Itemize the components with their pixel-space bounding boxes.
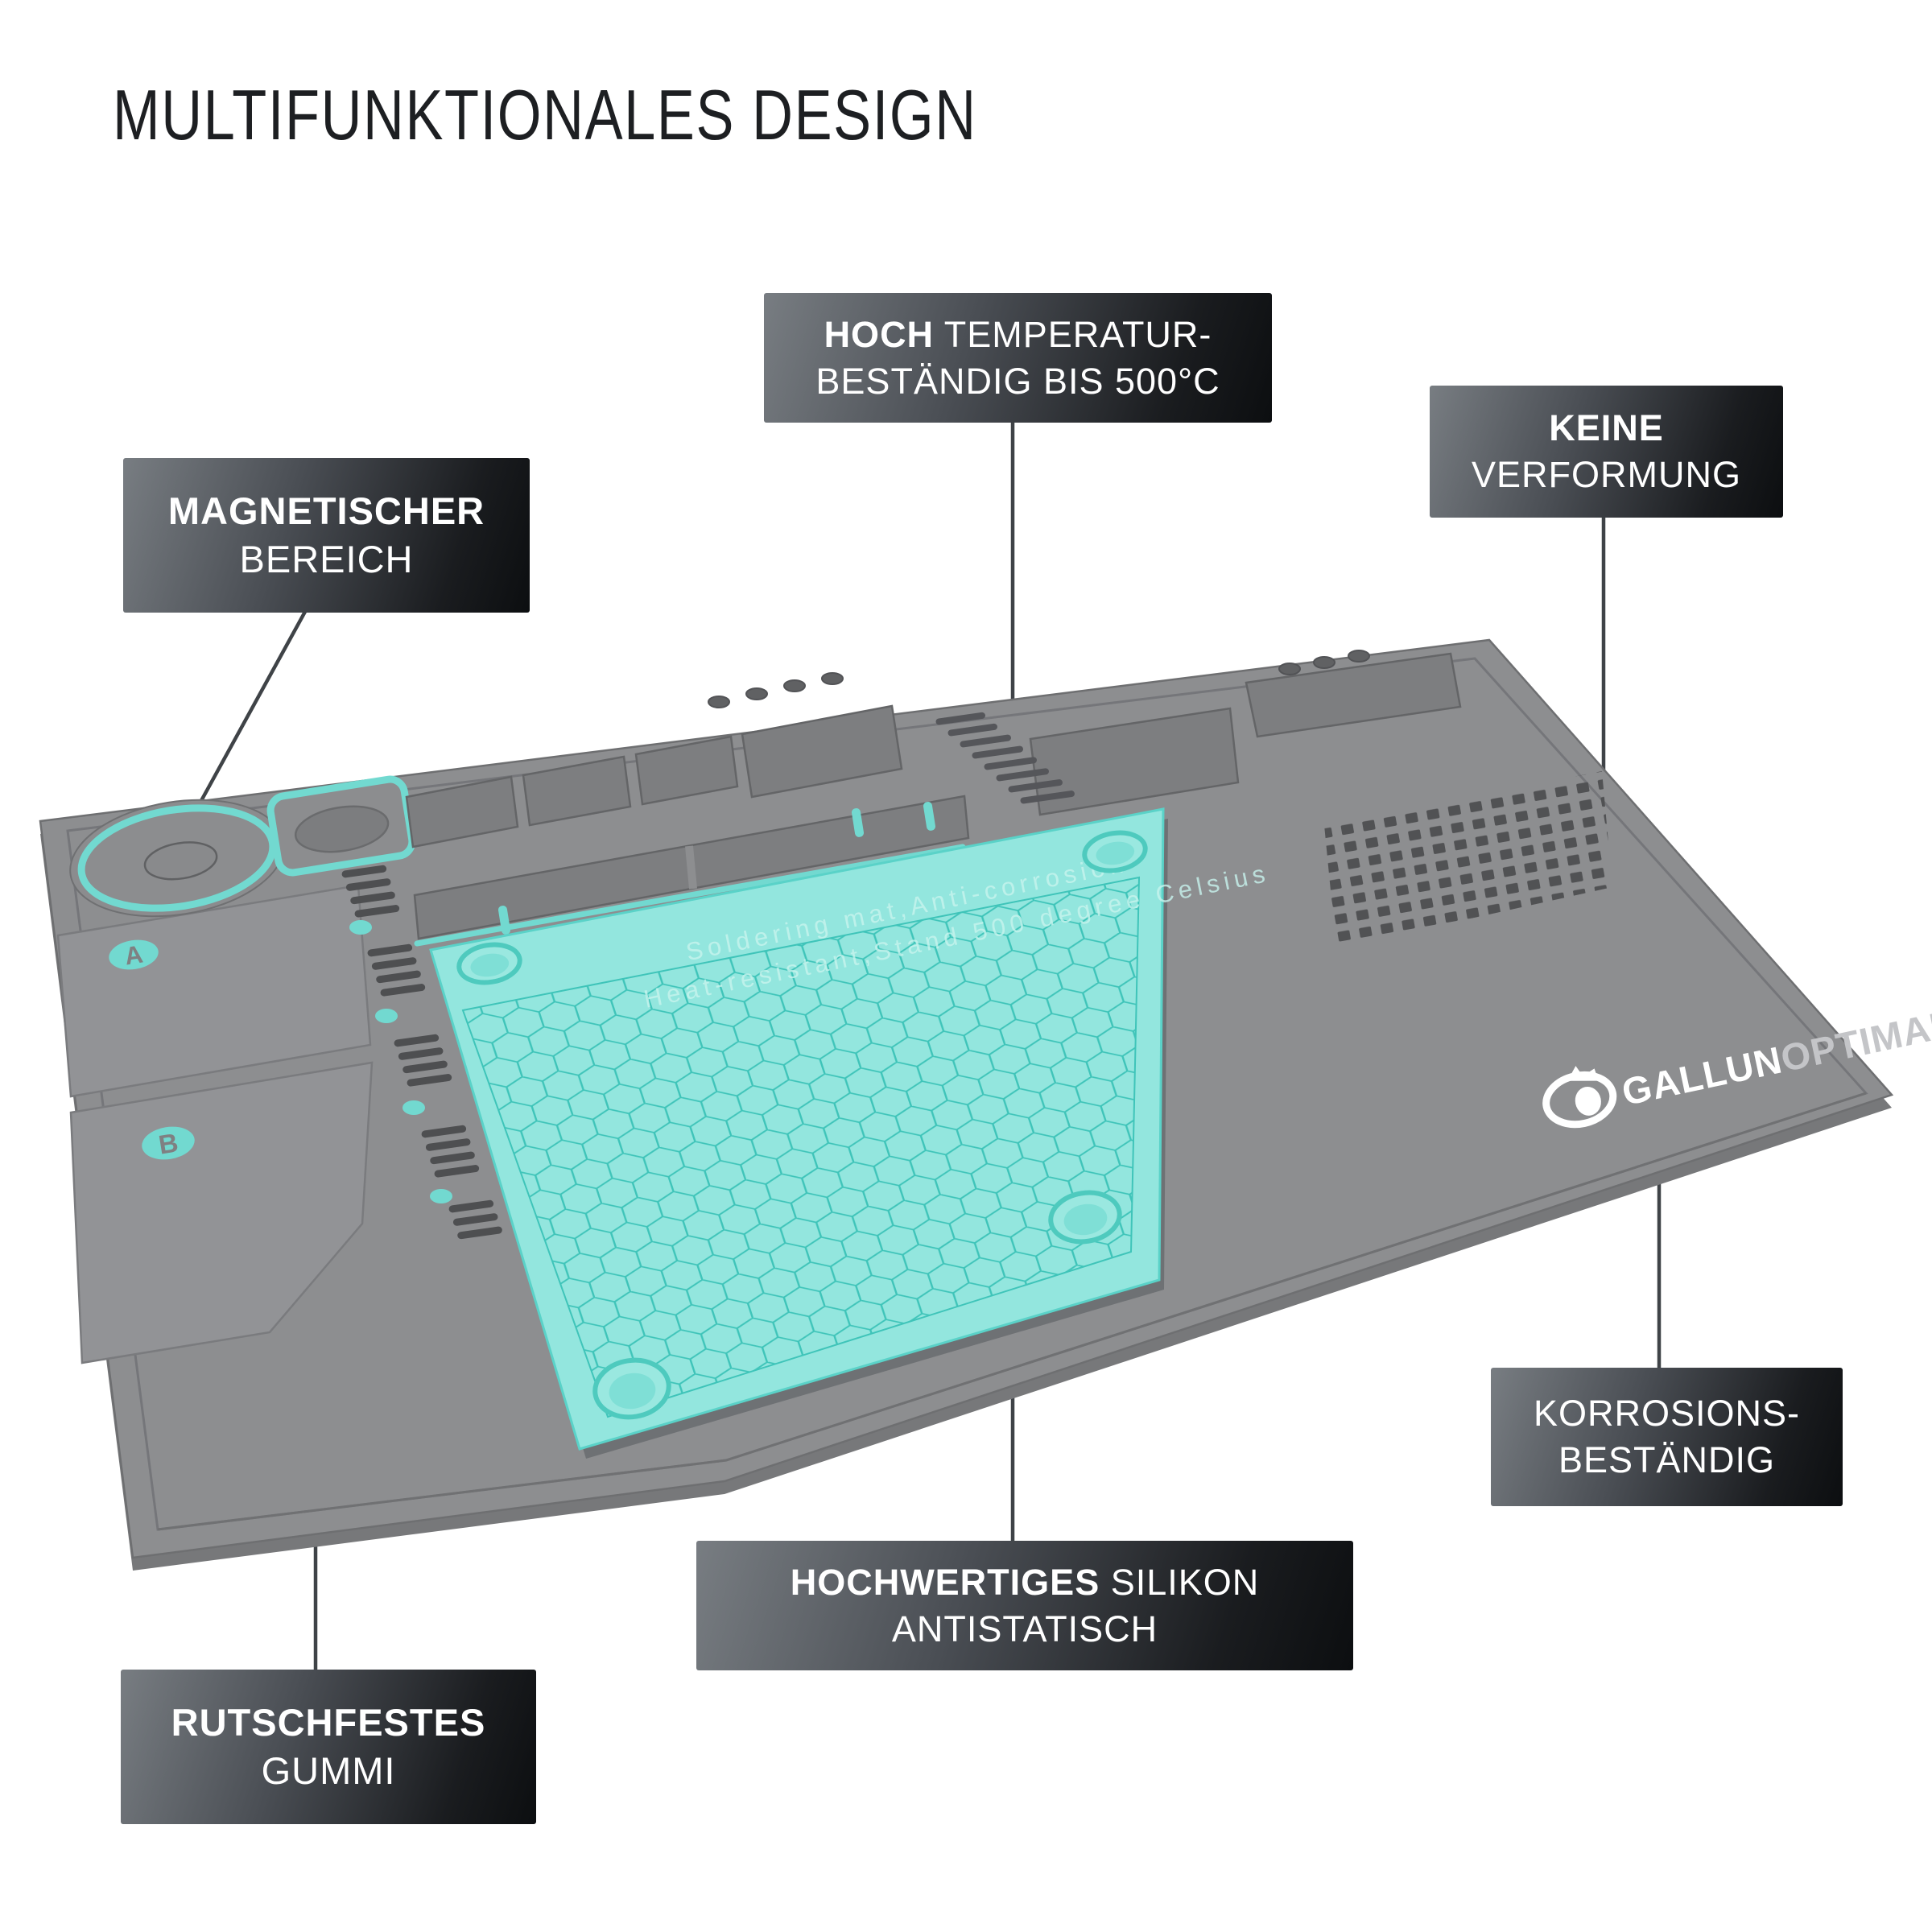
callout-temperature-line1-bold: HOCH [824, 314, 935, 355]
callout-temperature-line2: BESTÄNDIG BIS 500°C [764, 358, 1272, 405]
page-title: MULTIFUNKTIONALES DESIGN [113, 74, 977, 156]
callout-silicone-line1-rest: SILIKON [1100, 1562, 1259, 1603]
callout-no-deformation: KEINE VERFORMUNG [1430, 386, 1783, 518]
callout-deformation-line2: VERFORMUNG [1430, 452, 1783, 498]
callout-corrosion-line2: BESTÄNDIG [1491, 1437, 1843, 1484]
callout-non-slip-rubber: RUTSCHFESTES GUMMI [121, 1670, 536, 1824]
callout-magnetic-line1: MAGNETISCHER [123, 487, 530, 535]
callout-rubber-line1: RUTSCHFESTES [121, 1699, 536, 1747]
callout-corrosion-line1: KORROSIONS- [1491, 1390, 1843, 1437]
callout-corrosion-resistant: KORROSIONS- BESTÄNDIG [1491, 1368, 1843, 1506]
callout-silicone-line2: ANTISTATISCH [696, 1606, 1353, 1653]
callout-high-temperature: HOCH TEMPERATUR- BESTÄNDIG BIS 500°C [764, 293, 1272, 423]
callout-quality-silicone: HOCHWERTIGES SILIKON ANTISTATISCH [696, 1541, 1353, 1670]
callout-magnetic-area: MAGNETISCHER BEREICH [123, 458, 530, 613]
callout-silicone-line1-bold: HOCHWERTIGES [791, 1562, 1100, 1603]
callout-rubber-line2: GUMMI [121, 1747, 536, 1795]
teal-square-tray [269, 777, 415, 874]
infographic-canvas: A B Soldering mat,Anti-corrosion Heat-re… [0, 0, 1932, 1932]
callout-magnetic-line2: BEREICH [123, 535, 530, 584]
callout-temperature-line1-rest: TEMPERATUR- [934, 314, 1212, 355]
callout-deformation-line1: KEINE [1430, 405, 1783, 452]
